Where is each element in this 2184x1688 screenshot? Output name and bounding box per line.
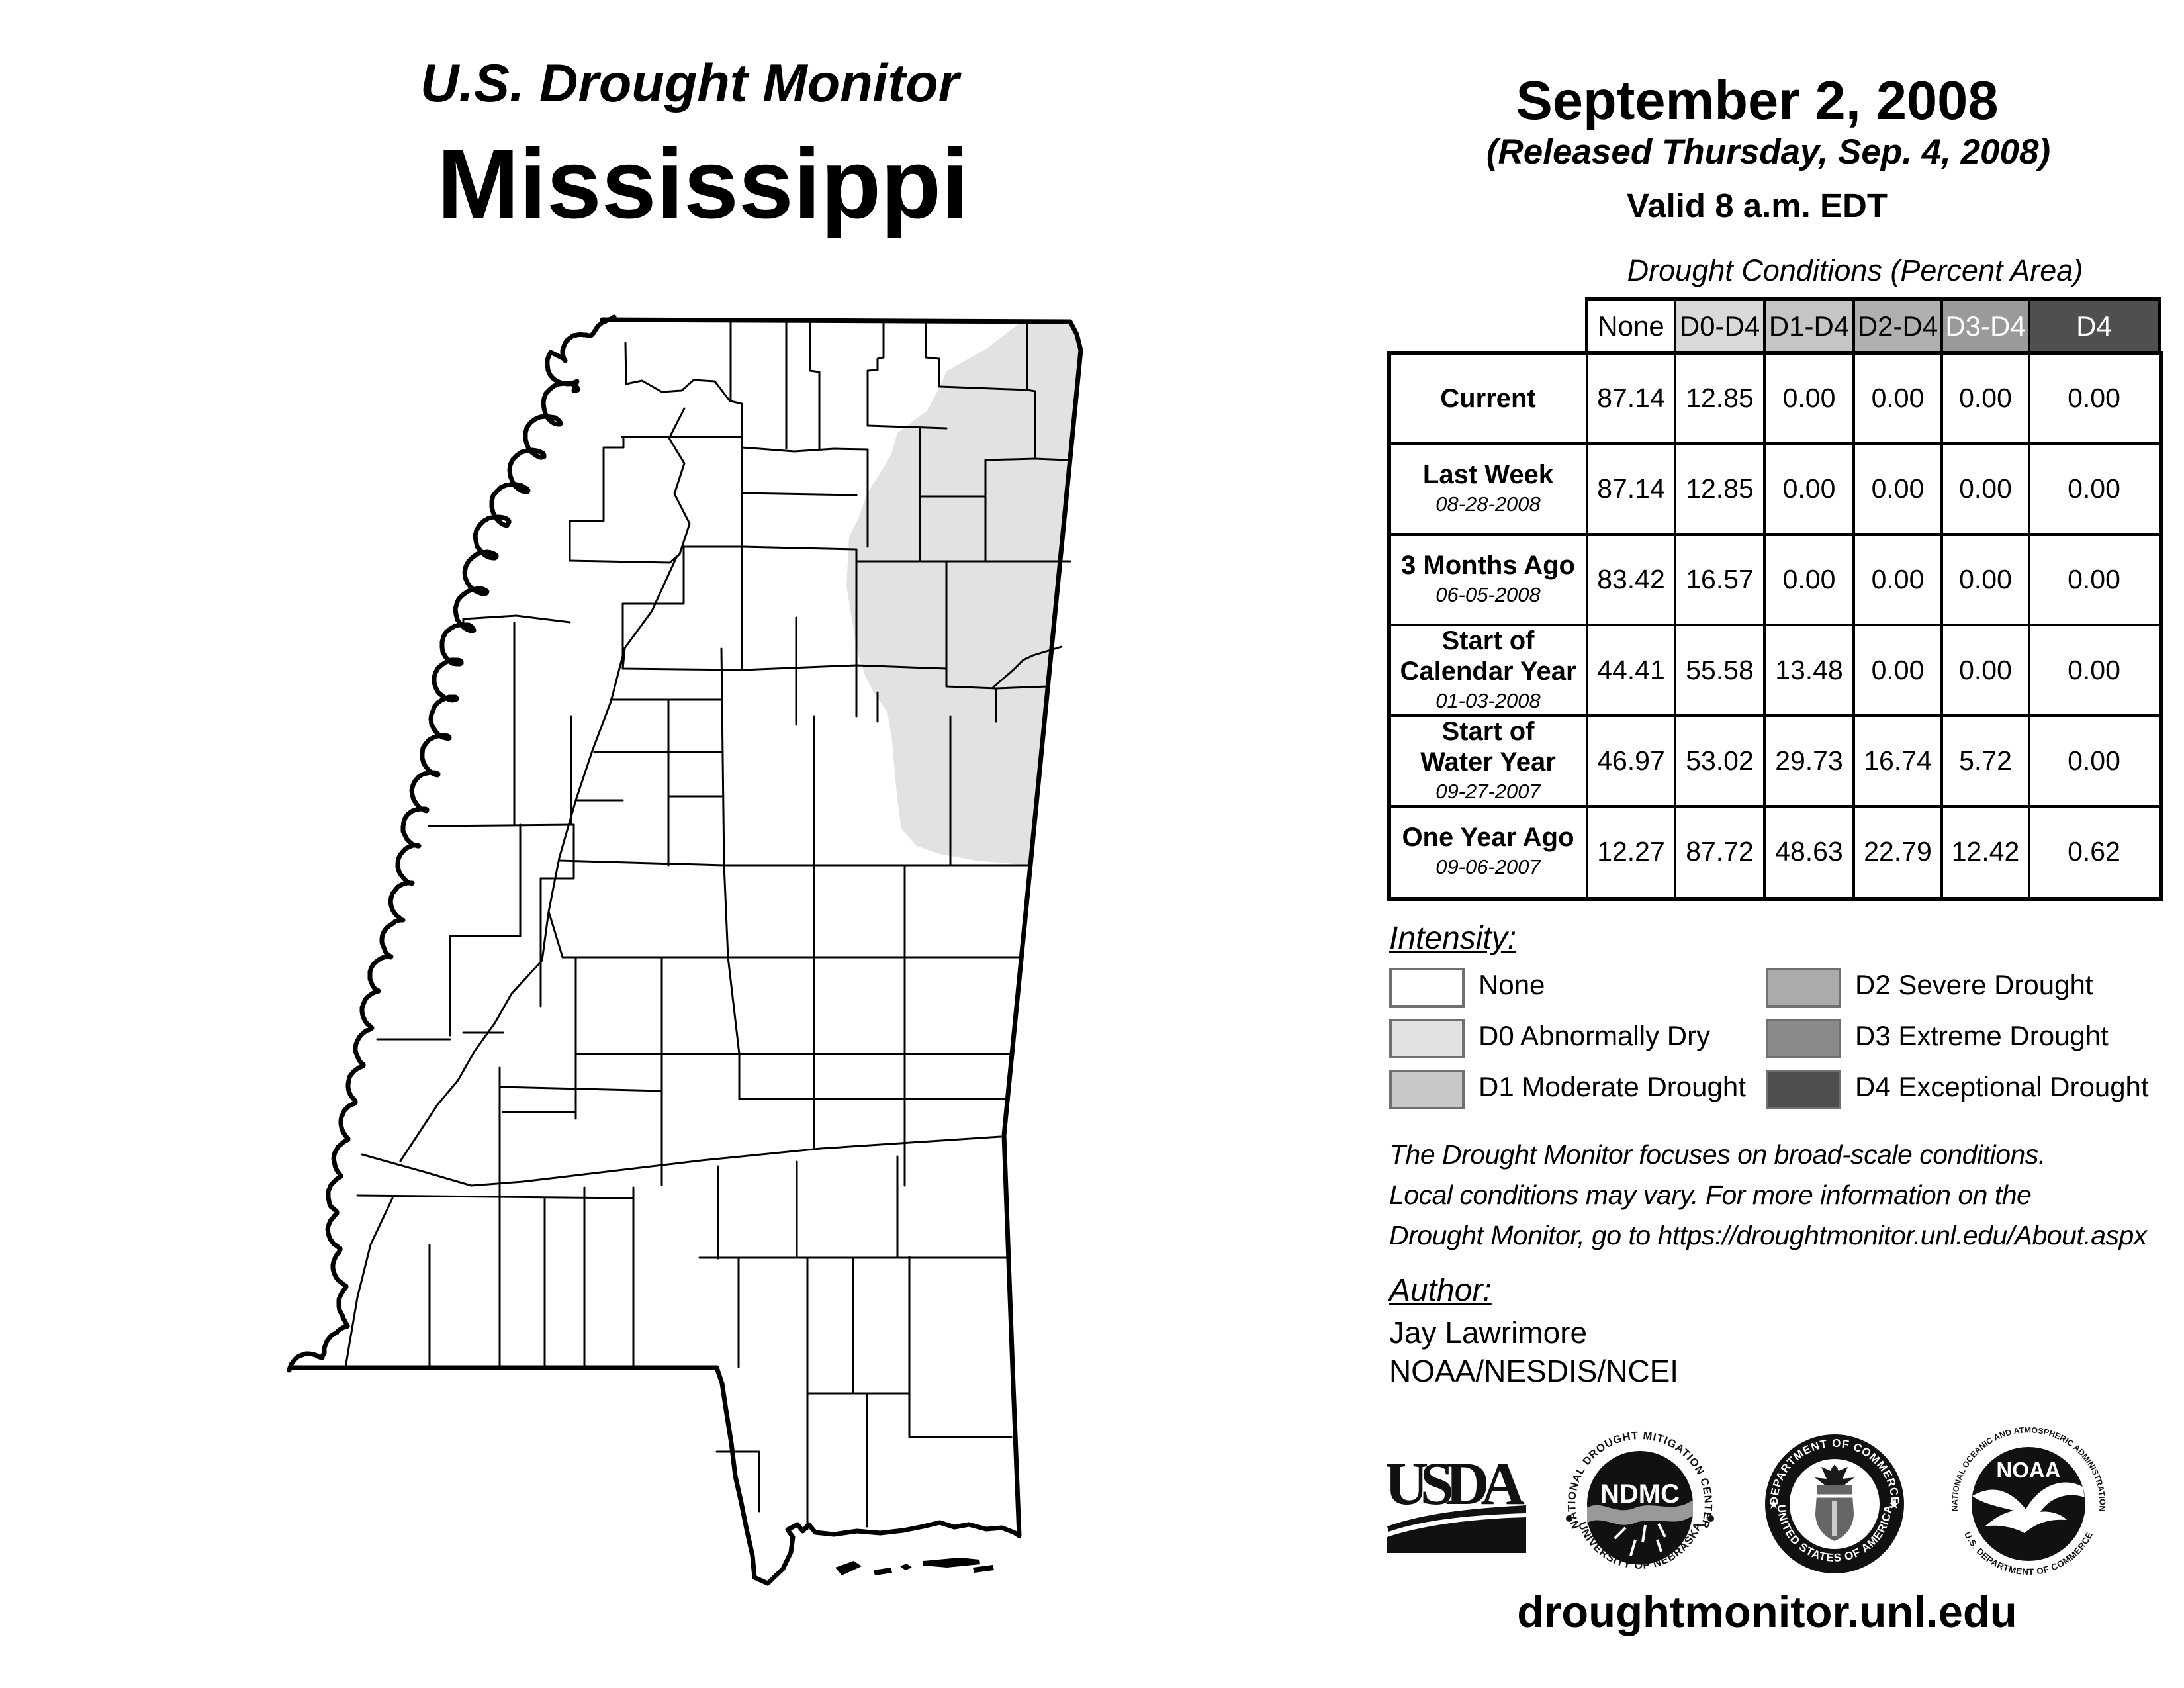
svg-text:★: ★: [1768, 1497, 1780, 1512]
svg-text:★: ★: [1888, 1497, 1900, 1512]
svg-text:NOAA: NOAA: [1996, 1458, 2060, 1482]
svg-text:NDMC: NDMC: [1600, 1479, 1680, 1509]
